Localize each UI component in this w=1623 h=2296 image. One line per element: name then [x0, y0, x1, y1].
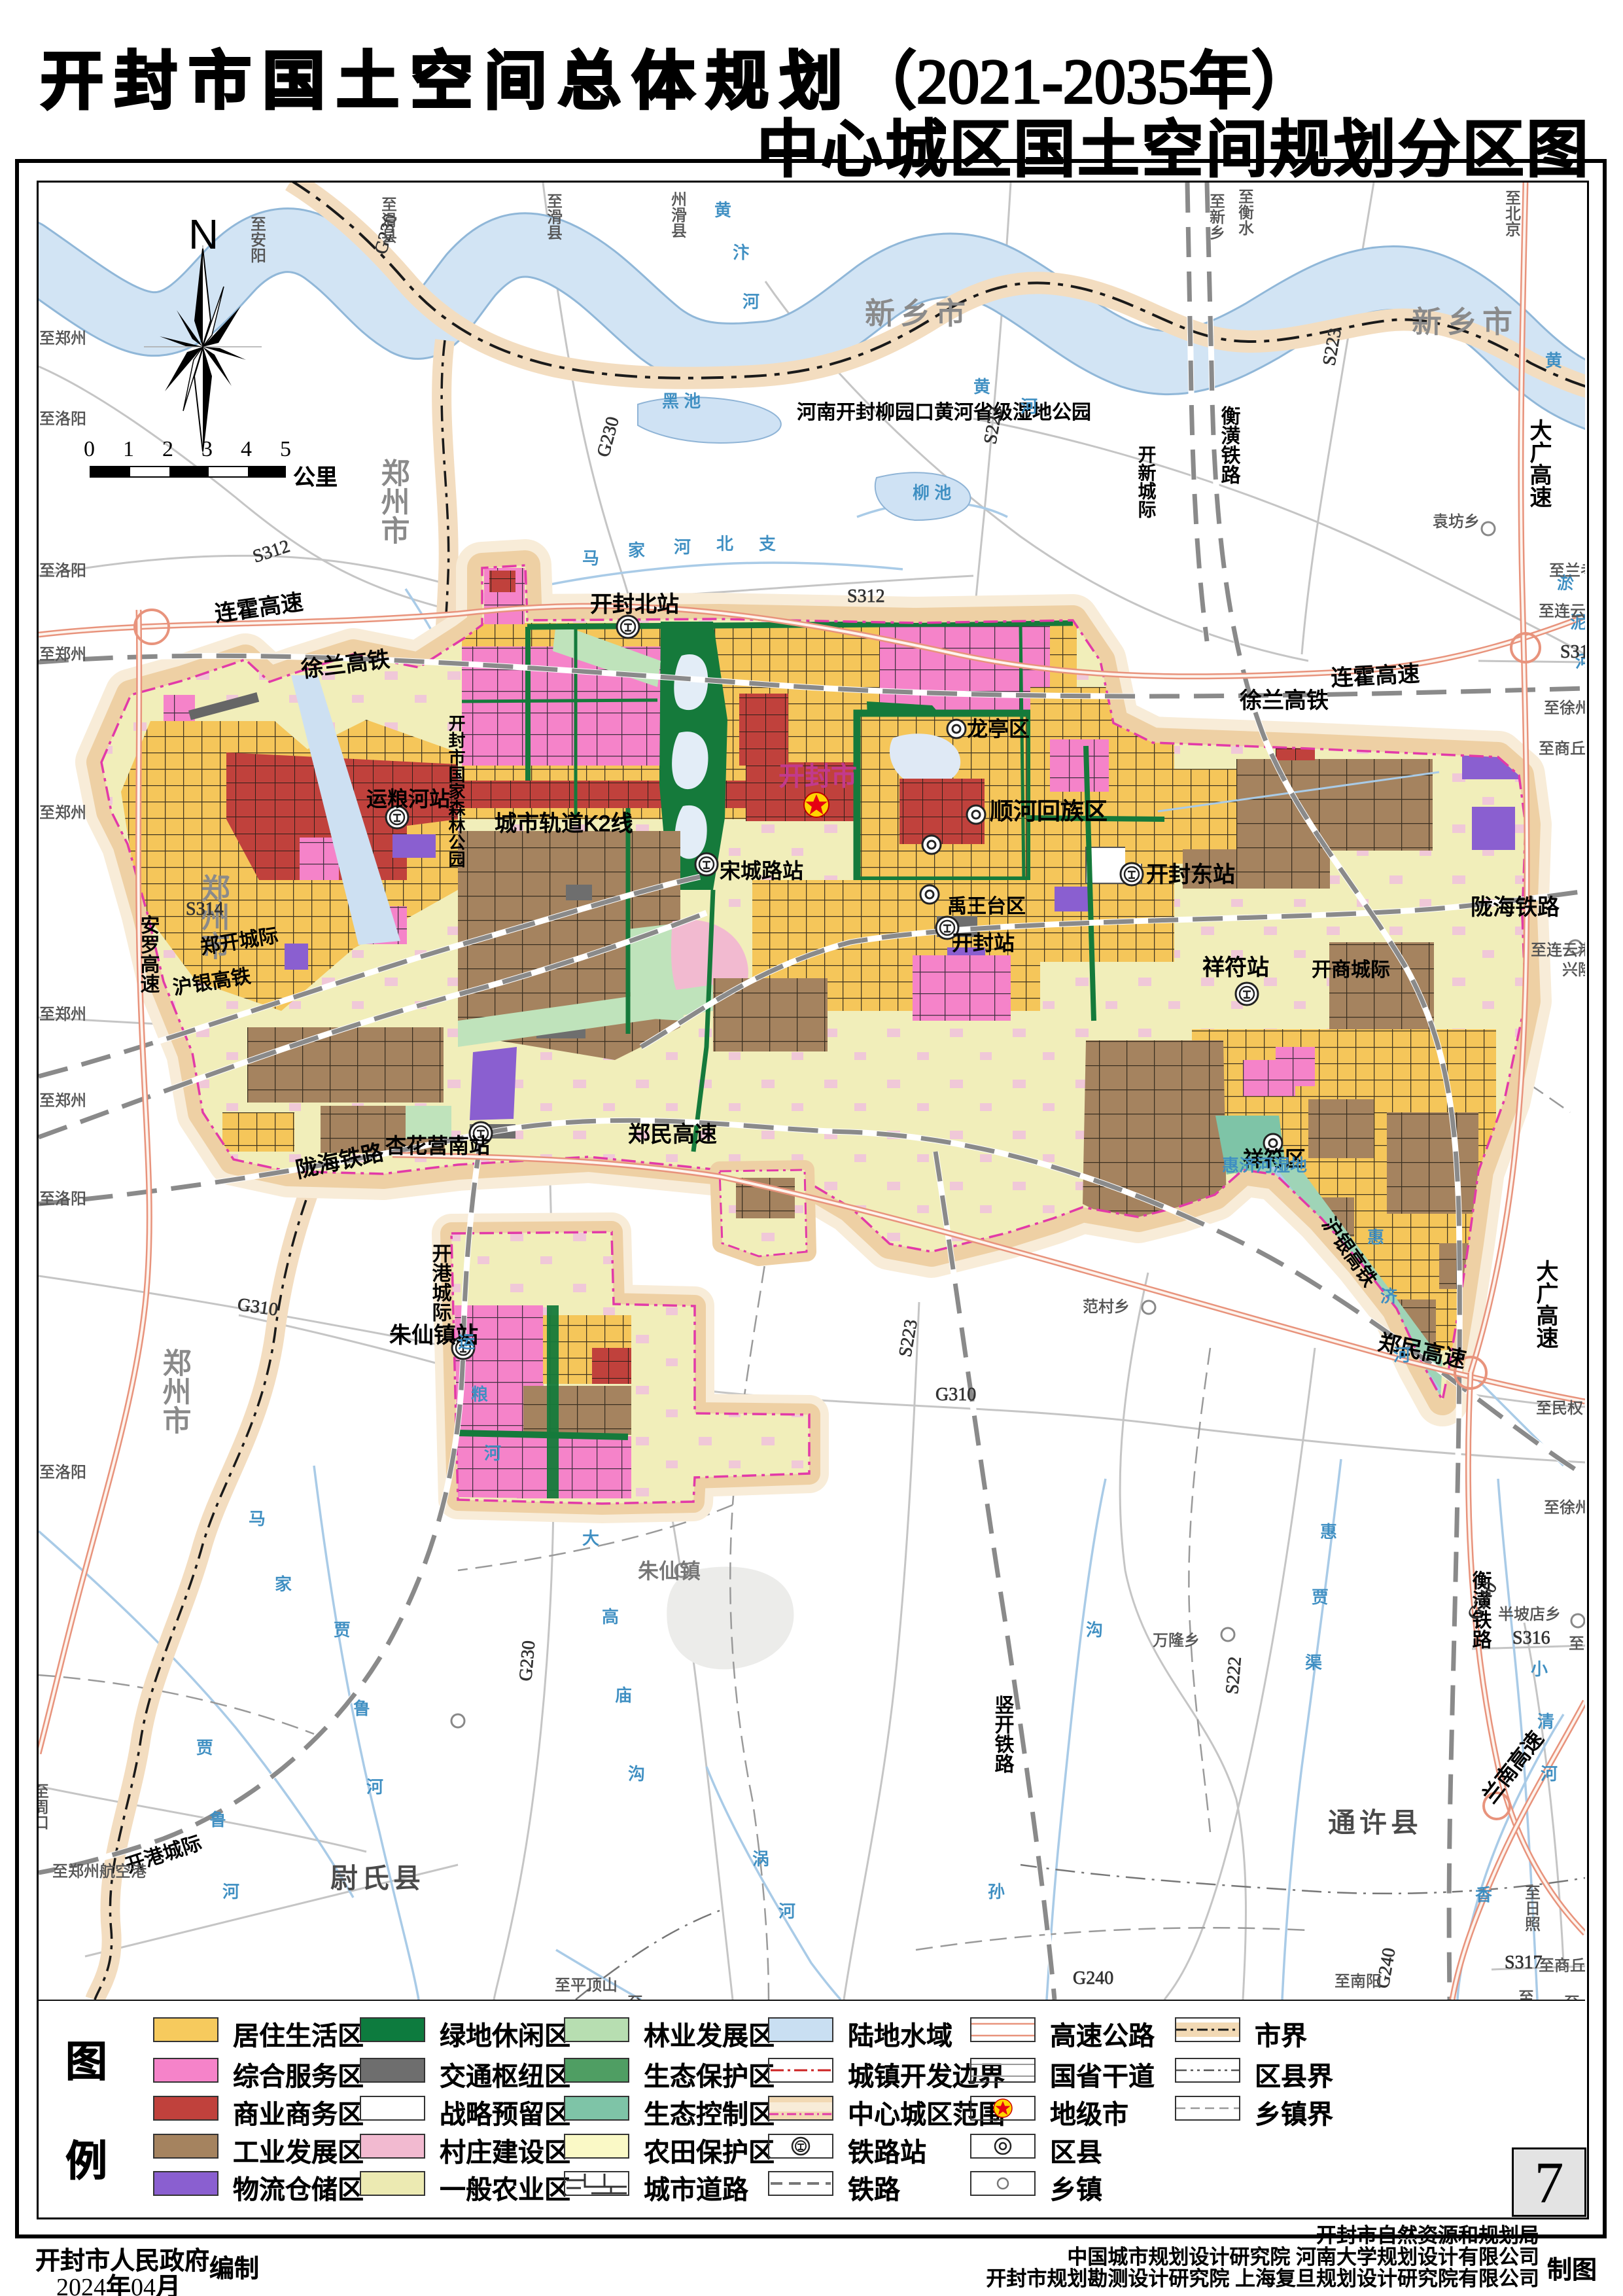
svg-text:N: N — [188, 211, 218, 258]
